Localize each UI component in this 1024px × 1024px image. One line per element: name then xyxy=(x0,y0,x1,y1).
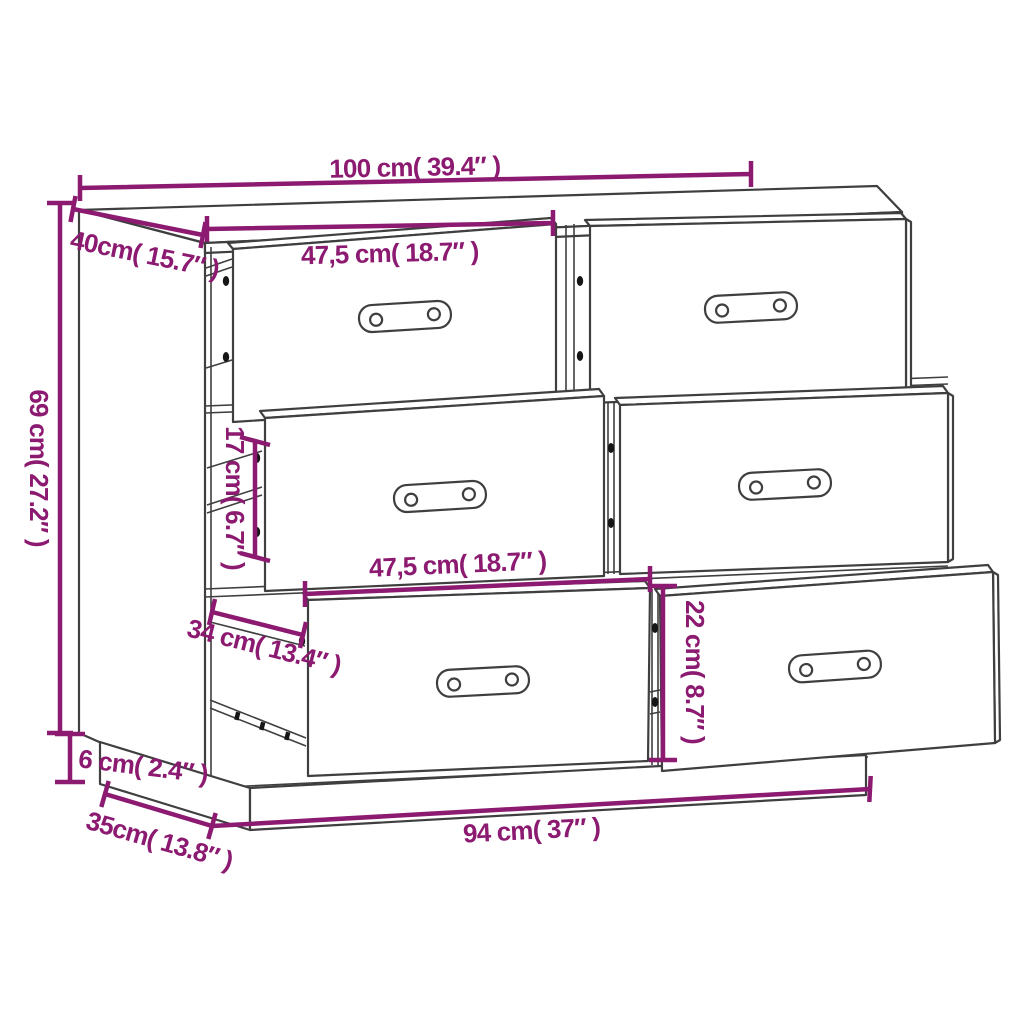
center-stile-row1 xyxy=(566,224,574,401)
drawer-handle xyxy=(393,480,486,513)
cabinet-left-panel xyxy=(79,210,205,789)
drawer-handle xyxy=(788,650,882,683)
dimension-top-drawer-width-label: 47,5 cm( 18.7″ ) xyxy=(301,236,479,271)
dimension-top-width-label: 100 cm( 39.4″ ) xyxy=(329,150,501,184)
drawer-handle xyxy=(738,469,831,501)
dimension-height-label: 69 cm( 27.2″ ) xyxy=(24,389,54,546)
dimension-inner-height: 17 cm( 6.7″ ) xyxy=(220,426,270,570)
dimension-base-width-label: 94 cm( 37″ ) xyxy=(462,811,601,848)
cabinet-dimension-drawing: 100 cm( 39.4″ ) 40cm( 15.7″ ) 69 cm( 27.… xyxy=(0,0,1024,1024)
drawer-handle xyxy=(358,300,451,333)
center-stile-row3 xyxy=(652,589,658,765)
dimension-bottom-drawer-height-label: 22 cm( 8.7″ ) xyxy=(680,600,710,744)
center-stile-row2 xyxy=(608,397,614,574)
drawer-handle xyxy=(704,292,797,324)
product-dimension-diagram: 100 cm( 39.4″ ) 40cm( 15.7″ ) 69 cm( 27.… xyxy=(0,0,1024,1024)
dimension-height: 69 cm( 27.2″ ) xyxy=(24,203,73,733)
dimension-inner-height-label: 17 cm( 6.7″ ) xyxy=(220,426,250,570)
cabinet-drawing xyxy=(79,186,1000,830)
drawer-handle xyxy=(436,666,529,698)
